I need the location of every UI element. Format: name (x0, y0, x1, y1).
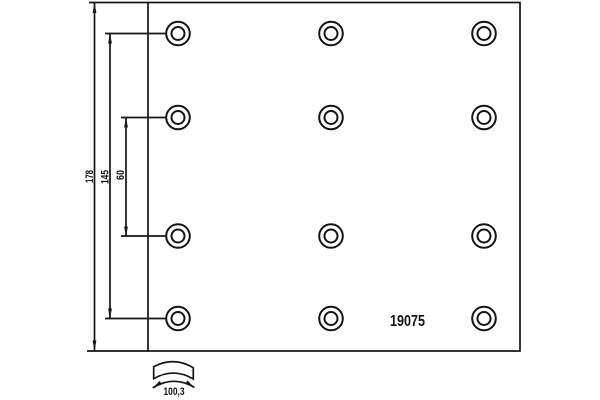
svg-text:100,3: 100,3 (164, 386, 185, 398)
svg-text:19075: 19075 (390, 313, 425, 330)
svg-text:145: 145 (100, 170, 112, 184)
svg-text:178: 178 (84, 170, 96, 183)
svg-text:60: 60 (115, 170, 127, 180)
